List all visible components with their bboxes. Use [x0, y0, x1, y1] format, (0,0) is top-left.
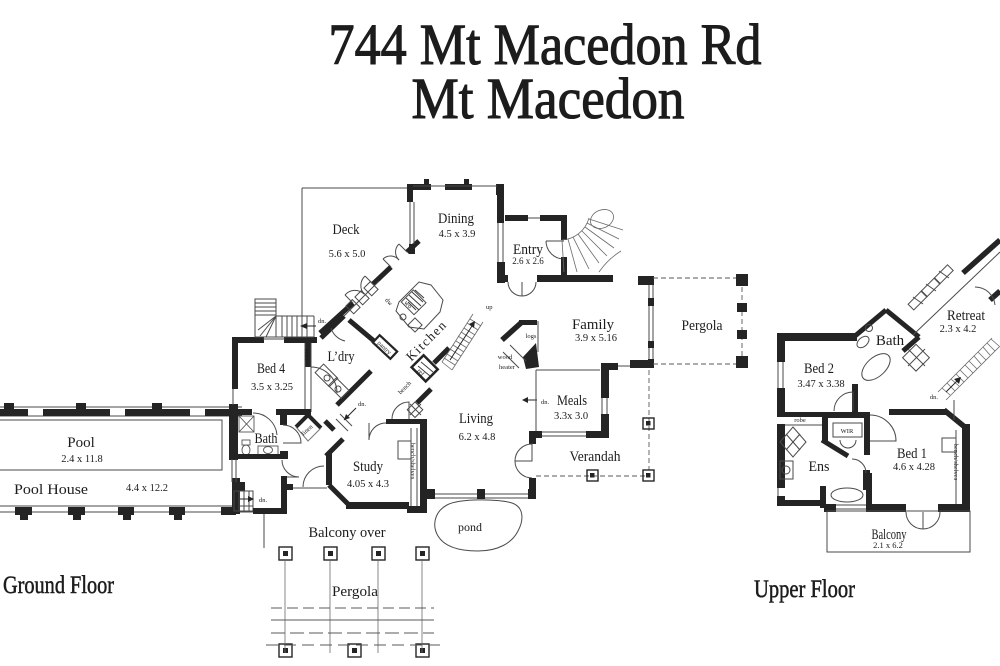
svg-text:Dining: Dining	[438, 211, 474, 227]
svg-text:Balcony over: Balcony over	[309, 525, 386, 541]
svg-text:Retreat: Retreat	[947, 308, 986, 324]
svg-text:up: up	[486, 304, 493, 311]
svg-text:Meals: Meals	[557, 393, 587, 409]
svg-text:bench/shelves: bench/shelves	[409, 443, 416, 480]
svg-text:4.4 x 12.2: 4.4 x 12.2	[126, 483, 168, 494]
svg-text:6.2 x 4.8: 6.2 x 4.8	[459, 432, 496, 443]
svg-text:2.4 x 11.8: 2.4 x 11.8	[61, 454, 103, 465]
svg-text:Pool House: Pool House	[14, 482, 88, 498]
svg-text:Study: Study	[353, 459, 383, 475]
svg-text:L’dry: L’dry	[328, 349, 355, 365]
svg-text:Pool: Pool	[67, 435, 95, 451]
svg-text:Family: Family	[572, 317, 614, 333]
svg-text:Bed 1: Bed 1	[897, 446, 927, 462]
svg-text:dn.: dn.	[358, 401, 367, 408]
svg-text:dn.: dn.	[541, 399, 550, 406]
svg-text:2.6 x 2.6: 2.6 x 2.6	[512, 256, 544, 266]
svg-text:wood: wood	[498, 354, 513, 361]
svg-text:robe: robe	[303, 349, 310, 361]
svg-text:2.3 x 4.2: 2.3 x 4.2	[940, 324, 977, 335]
svg-text:Pergola: Pergola	[682, 318, 723, 334]
svg-text:Verandah: Verandah	[570, 449, 621, 465]
svg-text:heater: heater	[499, 364, 516, 371]
svg-text:Ground Floor: Ground Floor	[3, 572, 115, 599]
svg-text:Bed 2: Bed 2	[804, 361, 834, 377]
svg-text:4.5 x 3.9: 4.5 x 3.9	[439, 229, 476, 240]
svg-text:4.05 x 4.3: 4.05 x 4.3	[347, 479, 389, 490]
svg-text:Pergola: Pergola	[332, 584, 378, 600]
svg-text:dn.: dn.	[259, 497, 268, 504]
svg-text:Bath: Bath	[255, 431, 278, 447]
svg-text:3.9 x 5.16: 3.9 x 5.16	[575, 333, 617, 344]
svg-text:Living: Living	[459, 411, 493, 427]
svg-text:dn.: dn.	[930, 394, 939, 401]
svg-text:robe: robe	[794, 417, 806, 424]
svg-text:Upper Floor: Upper Floor	[754, 576, 856, 603]
svg-text:Ens: Ens	[809, 459, 830, 475]
svg-text:dn.: dn.	[318, 318, 327, 325]
svg-text:5.6 x 5.0: 5.6 x 5.0	[329, 249, 366, 260]
svg-text:logs: logs	[526, 333, 537, 340]
svg-text:Bed 4: Bed 4	[257, 361, 285, 377]
svg-text:Bath: Bath	[876, 333, 905, 349]
svg-text:Mt Macedon: Mt Macedon	[412, 66, 685, 131]
svg-text:Deck: Deck	[333, 222, 360, 238]
svg-text:WIR: WIR	[841, 428, 854, 435]
svg-text:3.47 x 3.38: 3.47 x 3.38	[797, 379, 844, 390]
svg-text:3.3x 3.0: 3.3x 3.0	[554, 411, 588, 422]
svg-text:pond: pond	[458, 520, 482, 534]
svg-text:2.1 x 6.2: 2.1 x 6.2	[873, 540, 903, 550]
svg-text:4.6 x 4.28: 4.6 x 4.28	[893, 462, 935, 473]
svg-text:3.5 x 3.25: 3.5 x 3.25	[251, 382, 293, 393]
